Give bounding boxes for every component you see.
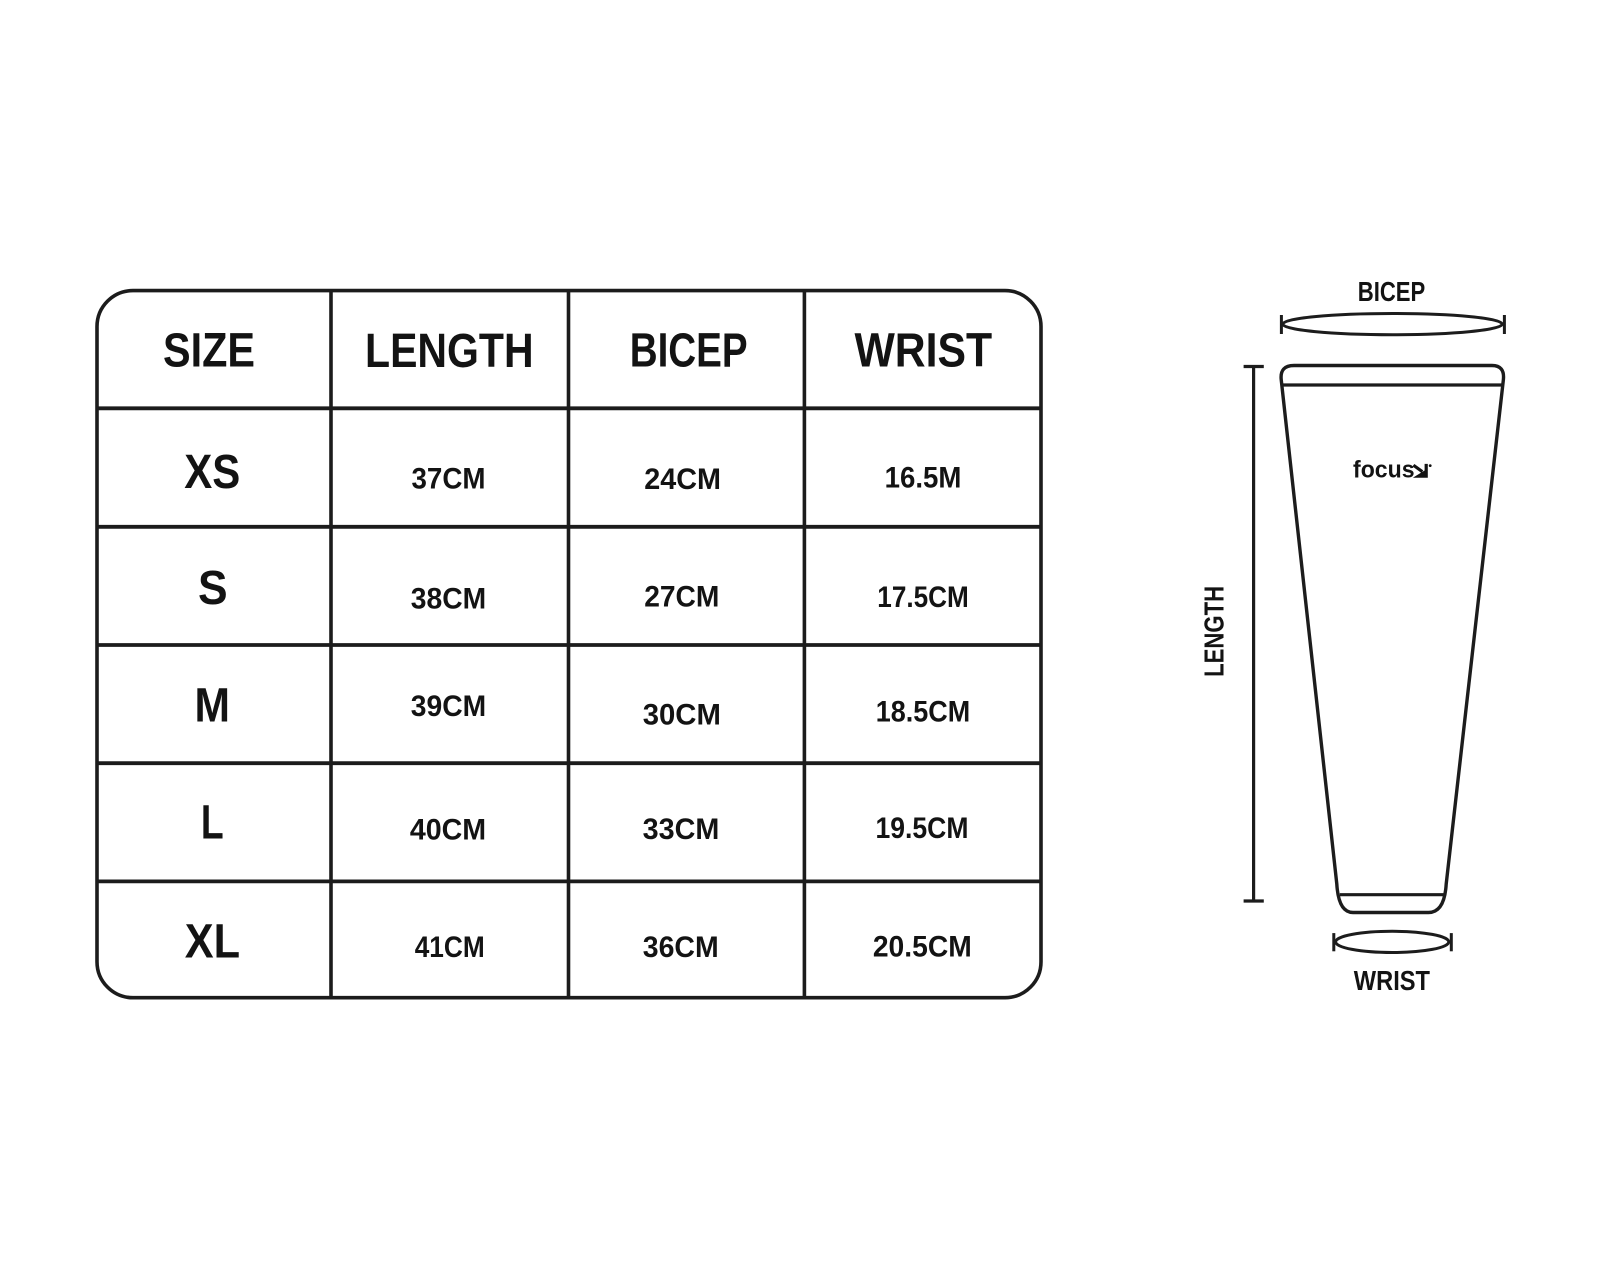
svg-text:37CM: 37CM [412,463,486,496]
svg-text:30CM: 30CM [643,699,721,732]
svg-text:39CM: 39CM [411,690,486,723]
svg-text:XL: XL [185,915,240,968]
svg-text:LENGTH: LENGTH [1198,586,1229,677]
svg-text:LENGTH: LENGTH [365,325,534,378]
svg-text:36CM: 36CM [643,931,719,964]
svg-text:24CM: 24CM [644,463,721,496]
svg-text:WRIST: WRIST [854,324,992,377]
svg-text:38CM: 38CM [411,582,486,615]
svg-text:BICEP: BICEP [1358,276,1426,307]
svg-text:BICEP: BICEP [630,324,748,377]
svg-text:focus: focus [1353,456,1415,483]
svg-text:M: M [194,679,230,732]
svg-text:16.5M: 16.5M [885,462,962,495]
svg-text:20.5CM: 20.5CM [873,931,972,964]
svg-text:S: S [198,562,228,615]
svg-text:XS: XS [184,446,240,499]
svg-text:18.5CM: 18.5CM [876,696,970,729]
svg-text:L: L [201,796,224,849]
svg-text:27CM: 27CM [644,581,719,614]
svg-text:41CM: 41CM [415,931,485,964]
svg-text:19.5CM: 19.5CM [876,812,969,845]
svg-text:WRIST: WRIST [1354,965,1430,996]
svg-text:33CM: 33CM [643,813,720,846]
svg-text:SIZE: SIZE [163,324,255,377]
svg-text:40CM: 40CM [410,813,486,846]
svg-text:17.5CM: 17.5CM [877,581,968,614]
